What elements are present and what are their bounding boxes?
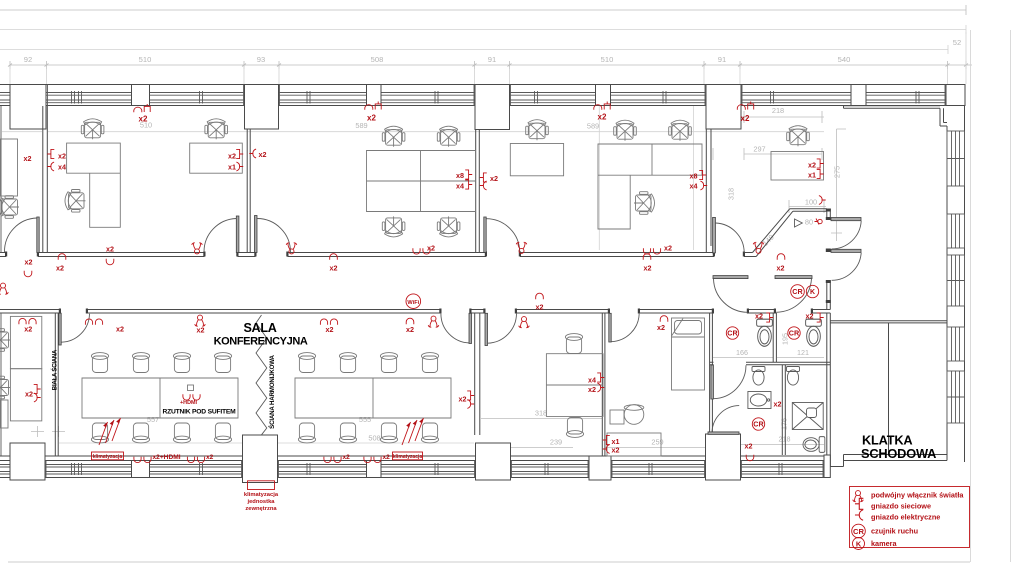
svg-text:K: K (856, 539, 862, 548)
svg-text:jednostka: jednostka (246, 499, 275, 505)
svg-text:x2: x2 (24, 154, 32, 163)
svg-text:176: 176 (780, 418, 789, 430)
svg-text:x2: x2 (58, 152, 66, 161)
svg-text:CR: CR (792, 287, 803, 296)
svg-text:x1: x1 (228, 163, 236, 172)
svg-text:+HDMI: +HDMI (180, 400, 197, 406)
svg-text:CR: CR (789, 329, 800, 338)
svg-text:x2: x2 (644, 264, 652, 273)
svg-text:166: 166 (736, 348, 748, 357)
svg-text:RZUTNIK POD SUFITEM: RZUTNIK POD SUFITEM (162, 409, 236, 416)
svg-text:x2: x2 (206, 454, 214, 461)
svg-text:239: 239 (550, 438, 562, 447)
svg-text:259: 259 (651, 438, 663, 447)
svg-text:x2: x2 (536, 303, 544, 312)
svg-text:52: 52 (953, 38, 961, 47)
svg-text:x4: x4 (588, 375, 596, 384)
svg-text:klimatyzacja: klimatyzacja (393, 454, 423, 460)
svg-text:podwójny włącznik światła: podwójny włącznik światła (871, 491, 964, 500)
svg-text:318: 318 (727, 188, 736, 200)
svg-text:508: 508 (368, 434, 380, 443)
svg-text:x2: x2 (588, 385, 596, 394)
svg-text:589: 589 (587, 122, 599, 131)
svg-text:klimatyzacja: klimatyzacja (244, 492, 279, 498)
svg-text:x2: x2 (330, 264, 338, 273)
svg-text:x2: x2 (25, 258, 33, 267)
svg-text:WiFi: WiFi (407, 300, 419, 306)
svg-text:klimatyzacja: klimatyzacja (93, 454, 123, 460)
svg-text:ŚCIANA HARMONIJKOWA: ŚCIANA HARMONIJKOWA (269, 354, 276, 428)
svg-text:555: 555 (359, 415, 371, 424)
svg-text:gniazdo sieciowe: gniazdo sieciowe (871, 502, 931, 511)
svg-text:x2: x2 (755, 312, 763, 321)
svg-text:x2: x2 (777, 264, 785, 273)
svg-text:508: 508 (371, 55, 384, 64)
svg-text:KONFERENCYJNA: KONFERENCYJNA (214, 336, 308, 348)
svg-text:x2: x2 (406, 325, 414, 334)
svg-text:x2: x2 (808, 161, 816, 170)
svg-text:121: 121 (797, 348, 809, 357)
svg-text:x4: x4 (58, 163, 66, 172)
svg-text:x2: x2 (197, 326, 205, 335)
svg-text:x2: x2 (116, 325, 124, 334)
svg-text:x2+HDMI: x2+HDMI (153, 454, 181, 461)
svg-text:zewnętrzna: zewnętrzna (245, 506, 277, 512)
svg-text:x2: x2 (25, 390, 33, 399)
svg-text:SCHODOWA: SCHODOWA (861, 446, 936, 461)
svg-text:gniazdo elektryczne: gniazdo elektryczne (871, 513, 940, 522)
svg-text:x1: x1 (808, 171, 816, 180)
svg-text:91: 91 (718, 55, 726, 64)
svg-text:x2: x2 (427, 244, 435, 253)
svg-text:x2: x2 (56, 264, 64, 273)
svg-text:CR: CR (753, 420, 764, 429)
svg-text:92: 92 (24, 55, 32, 64)
svg-text:x2: x2 (106, 245, 114, 254)
svg-text:x2: x2 (459, 395, 467, 404)
svg-text:BIAŁA ŚCIANA: BIAŁA ŚCIANA (52, 349, 59, 390)
svg-text:x4: x4 (690, 182, 698, 191)
svg-text:218: 218 (779, 435, 791, 444)
svg-text:x2: x2 (343, 454, 351, 461)
svg-text:x2: x2 (259, 150, 267, 159)
svg-text:x2: x2 (664, 244, 672, 253)
svg-text:x2: x2 (326, 325, 334, 334)
svg-text:93: 93 (257, 55, 265, 64)
svg-text:x8: x8 (456, 171, 464, 180)
svg-text:x2: x2 (741, 114, 750, 123)
svg-text:510: 510 (139, 55, 152, 64)
svg-text:x2: x2 (657, 323, 665, 332)
svg-text:x2: x2 (774, 400, 782, 409)
svg-text:x2: x2 (383, 454, 391, 461)
svg-text:540: 540 (838, 55, 851, 64)
svg-text:91: 91 (488, 55, 496, 64)
svg-text:czujnik ruchu: czujnik ruchu (871, 527, 918, 536)
svg-text:SALA: SALA (243, 321, 276, 335)
svg-text:x2: x2 (367, 114, 376, 123)
svg-text:CR: CR (853, 527, 864, 536)
svg-text:CR: CR (727, 329, 738, 338)
svg-text:557: 557 (147, 415, 159, 424)
svg-text:x8: x8 (690, 172, 698, 181)
svg-text:80: 80 (805, 218, 813, 227)
svg-text:218: 218 (772, 106, 784, 115)
svg-text:100: 100 (805, 198, 817, 207)
svg-text:x2: x2 (228, 151, 236, 160)
svg-text:297: 297 (753, 145, 765, 154)
svg-text:x4: x4 (456, 181, 464, 190)
svg-text:275: 275 (833, 166, 842, 178)
svg-text:x2: x2 (139, 115, 148, 124)
svg-text:x2: x2 (24, 325, 32, 334)
svg-text:318: 318 (535, 409, 547, 418)
svg-text:510: 510 (601, 55, 614, 64)
svg-text:x2: x2 (490, 174, 498, 183)
svg-text:x2: x2 (745, 442, 753, 451)
svg-text:x2: x2 (806, 312, 814, 321)
svg-text:kamera: kamera (871, 539, 898, 548)
svg-text:589: 589 (355, 121, 367, 130)
svg-text:K: K (810, 289, 815, 296)
svg-text:x2: x2 (598, 113, 607, 122)
svg-text:x2: x2 (612, 446, 620, 455)
